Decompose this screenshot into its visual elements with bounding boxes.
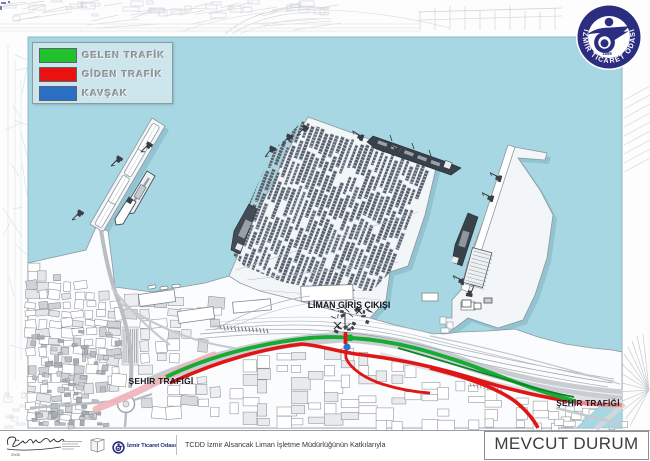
svg-text:1885: 1885 bbox=[602, 51, 612, 56]
svg-text:ŞEHİR TRAFİĞİ: ŞEHİR TRAFİĞİ bbox=[556, 397, 619, 408]
svg-text:2005: 2005 bbox=[11, 452, 21, 457]
svg-text:ŞEHİR TRAFİĞİ: ŞEHİR TRAFİĞİ bbox=[129, 375, 194, 386]
svg-text:LİMAN GİRİŞ ÇIKIŞI: LİMAN GİRİŞ ÇIKIŞI bbox=[308, 300, 391, 310]
